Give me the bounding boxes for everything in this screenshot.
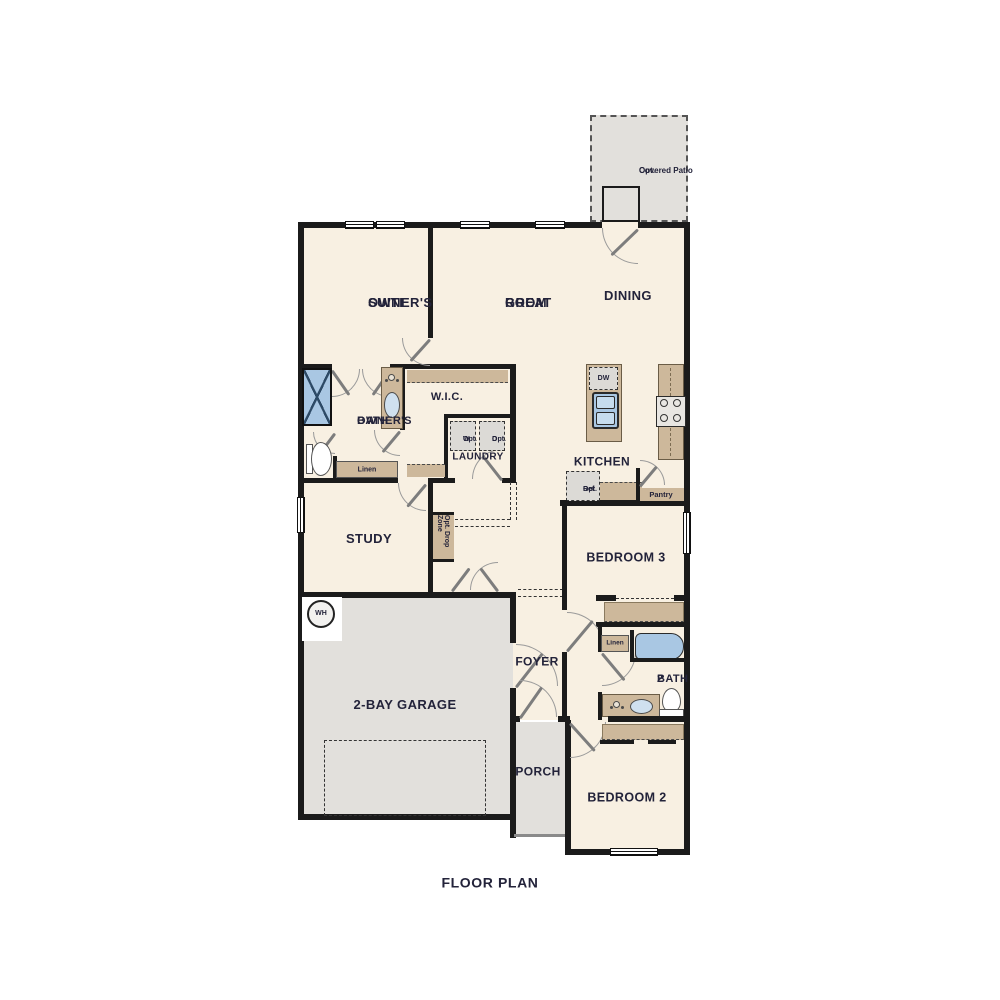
burner	[673, 414, 681, 422]
cased-opening	[516, 482, 517, 520]
wall	[648, 740, 676, 744]
wall	[390, 364, 515, 369]
water-heater: WH	[307, 600, 335, 628]
bedroom3-label: BEDROOM 3	[586, 551, 665, 565]
wall	[600, 740, 634, 744]
faucet-icon	[613, 701, 620, 708]
wall	[674, 595, 684, 601]
cased-opening	[510, 482, 511, 520]
opt-dryer: Opt.D	[479, 421, 505, 451]
opt-refrigerator: Opt.Ref	[566, 471, 600, 501]
garage-label: 2-BAY GARAGE	[353, 698, 456, 712]
linen-label: Linen	[606, 641, 623, 648]
opt-drop-zone-label: Opt. Drop Zone	[436, 515, 450, 561]
window	[610, 848, 658, 856]
water-heater-label: WH	[315, 610, 327, 617]
window	[683, 512, 691, 554]
wall	[298, 478, 398, 483]
window	[460, 221, 490, 229]
cased-opening	[455, 526, 510, 527]
study-label: STUDY	[346, 532, 392, 546]
shower	[302, 368, 332, 426]
bathtub	[635, 633, 684, 660]
wic-label: W.I.C.	[431, 392, 463, 404]
wall	[502, 478, 516, 483]
wall	[596, 622, 684, 627]
sink-basin	[596, 412, 615, 425]
opt-dishwasher: DW	[589, 367, 618, 390]
window	[376, 221, 405, 229]
wall	[562, 500, 567, 610]
window	[535, 221, 565, 229]
plan-title: FLOOR PLAN	[442, 875, 539, 890]
floor-plan-canvas: Linen Opt.W Opt.D Opt. Drop Zone DW Opt.…	[0, 0, 1000, 1000]
wall	[558, 716, 570, 722]
wall	[510, 688, 516, 818]
kitchen-label: KITCHEN	[574, 456, 630, 469]
bedroom2-label: BEDROOM 2	[587, 791, 666, 805]
laundry-label: LAUNDRY	[452, 453, 503, 464]
faucet-icon	[388, 374, 395, 381]
linen-label: Linen	[358, 466, 377, 473]
burner	[660, 399, 668, 407]
wall	[596, 595, 616, 601]
wall	[630, 630, 634, 660]
cased-opening	[518, 596, 563, 597]
porch-label: PORCH	[515, 766, 560, 779]
wall	[510, 597, 516, 643]
wall	[444, 414, 510, 418]
pantry-label: Pantry	[649, 491, 672, 499]
bedroom2-closet	[602, 724, 684, 740]
wic-shelf	[407, 370, 508, 383]
wall	[510, 364, 516, 482]
wall	[562, 652, 567, 720]
wic-shelf	[407, 464, 445, 477]
opt-washer: Opt.W	[450, 421, 476, 451]
cased-opening	[455, 519, 510, 520]
wall	[684, 222, 690, 510]
closet-track	[616, 598, 674, 599]
wall	[432, 478, 455, 483]
wall	[630, 658, 684, 662]
wall	[608, 716, 690, 722]
burner	[673, 399, 681, 407]
porch-edge	[514, 834, 565, 837]
dining-label: DINING	[604, 289, 652, 303]
window	[297, 497, 305, 533]
window	[345, 221, 374, 229]
bedroom3-closet	[604, 602, 684, 622]
cased-opening	[518, 589, 563, 590]
wall	[428, 222, 433, 338]
sink	[630, 699, 653, 714]
main-floor	[298, 222, 690, 604]
sink-basin	[596, 396, 615, 409]
burner	[660, 414, 668, 422]
patio-step	[602, 186, 640, 222]
foyer-label: FOYER	[515, 656, 558, 669]
garage-door-zone	[324, 740, 486, 816]
